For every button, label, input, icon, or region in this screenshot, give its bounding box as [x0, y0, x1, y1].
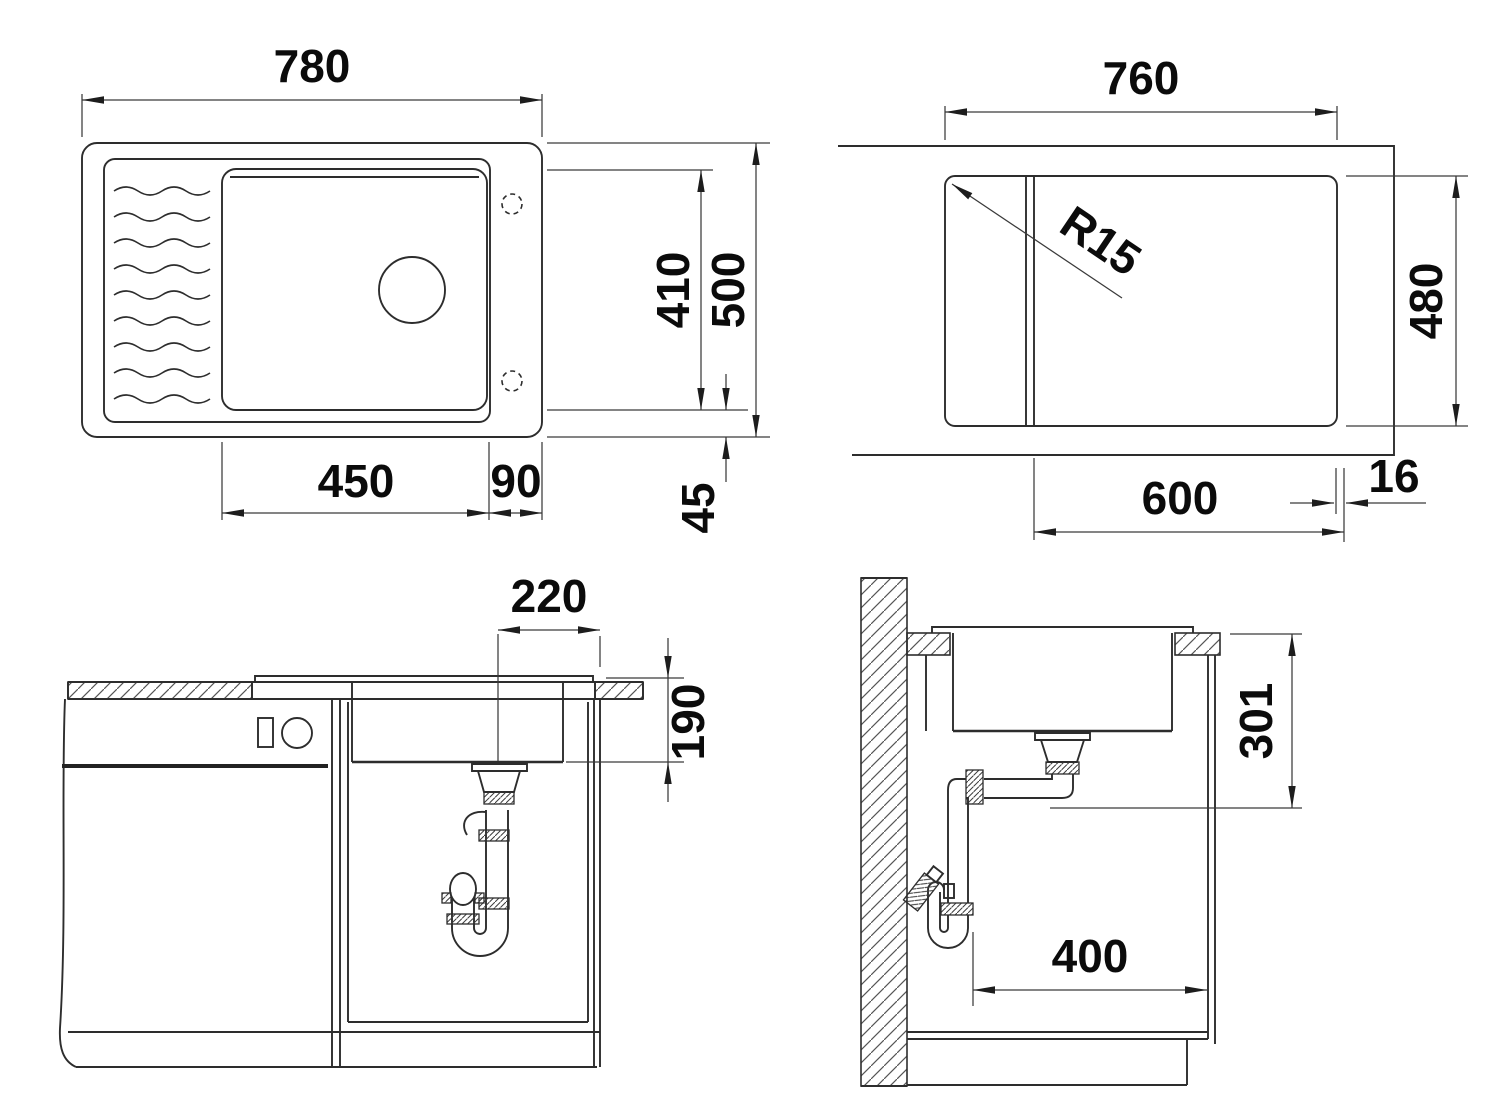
drainboard-wave-line — [114, 265, 210, 273]
dim-cutout-width: 760 — [1103, 52, 1180, 104]
tap-hole-bottom — [502, 371, 522, 391]
drainboard-wave-line — [114, 395, 210, 403]
dim-bowl-depth: 410 — [647, 252, 699, 329]
plinth — [68, 1032, 600, 1067]
dim-right-ledge: 90 — [490, 455, 541, 507]
dim-clearance-width: 400 — [1052, 930, 1129, 982]
drain-strainer-side — [1035, 733, 1090, 774]
technical-drawing-canvas: 780 500 410 450 90 45 R15 760 4 — [0, 0, 1500, 1119]
dim-outlet-height: 301 — [1230, 683, 1282, 760]
cabinet-bottom — [907, 1032, 1208, 1039]
sink-outline — [82, 143, 542, 437]
bowl-outline — [222, 169, 487, 410]
dim-edge-margin: 45 — [672, 482, 724, 533]
dishwasher-knob — [282, 718, 312, 748]
drain-strainer — [464, 764, 527, 835]
drainboard-wave-line — [114, 239, 210, 247]
siphon-side — [903, 770, 1073, 948]
drainboard-wave-line — [114, 187, 210, 195]
dim-depth-below-top: 190 — [662, 684, 714, 761]
drain-hole — [379, 257, 445, 323]
sink-inner-surround — [104, 159, 490, 422]
wall-section — [861, 578, 907, 1086]
worktop-section-right — [1175, 633, 1220, 655]
tap-hole-top — [502, 194, 522, 214]
siphon-front — [442, 810, 509, 956]
sink-rim-side — [932, 627, 1193, 633]
drainboard-wave-line — [114, 291, 210, 299]
bowl-walls-side — [953, 633, 1172, 731]
dim-corner-radius: R15 — [1051, 196, 1150, 286]
drainboard-wave-line — [114, 213, 210, 221]
dim-overall-width: 780 — [274, 40, 351, 92]
plinth-side — [907, 1039, 1187, 1085]
dim-overall-depth: 500 — [702, 252, 754, 329]
side-section-view: 301 400 — [861, 578, 1302, 1086]
dim-cutout-depth: 480 — [1400, 263, 1452, 340]
drainboard-wave-line — [114, 343, 210, 351]
dishwasher-panel — [258, 718, 273, 747]
worktop-hatch-left — [68, 682, 252, 699]
sink-cabinet-interior — [348, 702, 588, 1022]
drawing-svg: 780 500 410 450 90 45 R15 760 4 — [0, 0, 1500, 1119]
dim-drain-offset: 220 — [511, 570, 588, 622]
cabinet-front-edge — [1208, 655, 1215, 1044]
sink-top-view: 780 500 410 450 90 45 — [82, 40, 770, 534]
front-section-view: 220 190 — [60, 570, 714, 1067]
cabinet-left-edge — [60, 699, 76, 1067]
cabinet-divider — [332, 699, 340, 1067]
cabinet-right-wall — [594, 699, 600, 1067]
cabinet-side — [861, 655, 1215, 1086]
bowl-walls — [352, 682, 563, 762]
worktop-cutout-view: R15 760 480 600 16 — [838, 52, 1468, 542]
worktop-outline — [838, 146, 1394, 455]
worktop-hatch-right — [595, 682, 643, 699]
cutout-outline — [945, 176, 1337, 426]
dim-cabinet-width: 600 — [1142, 472, 1219, 524]
cabinet-front — [60, 699, 600, 1067]
drainboard-wave-line — [114, 317, 210, 325]
worktop-section-left — [907, 633, 950, 655]
drainboard-wave-line — [114, 369, 210, 377]
drainboard-waves — [114, 187, 210, 403]
dim-bowl-width: 450 — [318, 455, 395, 507]
dim-panel-thickness: 16 — [1368, 450, 1419, 502]
